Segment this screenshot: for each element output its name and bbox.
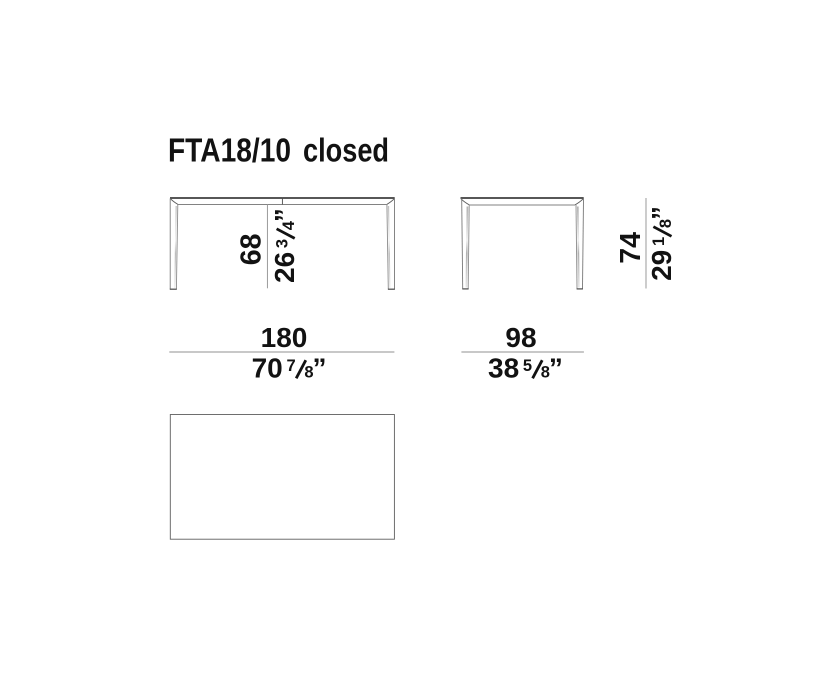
svg-text:68: 68	[236, 233, 268, 265]
svg-text:29: 29	[646, 250, 677, 281]
svg-text:5: 5	[523, 357, 532, 375]
svg-text:”: ”	[313, 353, 327, 384]
svg-text:7: 7	[287, 357, 296, 375]
svg-text:3: 3	[273, 239, 291, 248]
svg-text:FTA18/10: FTA18/10	[168, 132, 291, 169]
svg-text:”: ”	[549, 353, 563, 384]
svg-text:98: 98	[505, 322, 536, 353]
svg-text:38: 38	[488, 353, 519, 384]
svg-text:26: 26	[269, 252, 300, 283]
svg-text:closed: closed	[303, 132, 389, 169]
svg-text:74: 74	[615, 232, 647, 264]
svg-text:1: 1	[650, 237, 668, 246]
svg-text:”: ”	[646, 206, 677, 220]
svg-text:70: 70	[252, 353, 283, 384]
svg-text:180: 180	[261, 322, 308, 353]
svg-text:”: ”	[269, 208, 300, 222]
